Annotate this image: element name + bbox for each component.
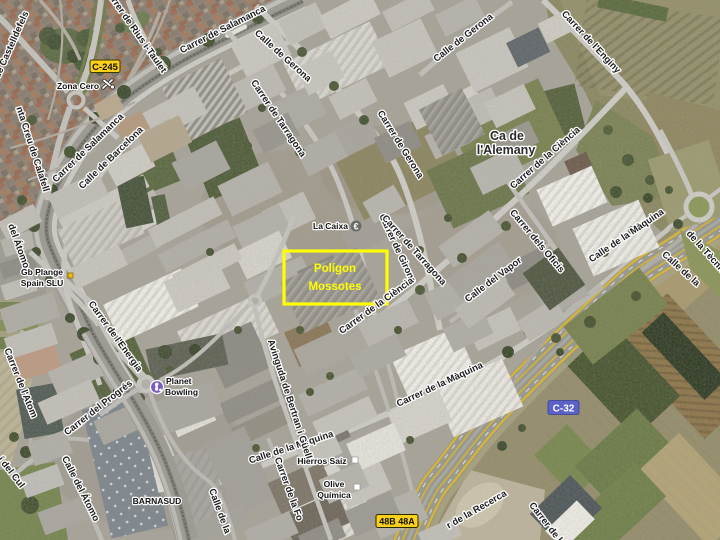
svg-text:€: € [353, 222, 358, 232]
svg-text:Spain SLU: Spain SLU [21, 278, 64, 288]
svg-text:48B 48A: 48B 48A [379, 517, 415, 527]
svg-text:Zona Cero: Zona Cero [57, 81, 99, 91]
svg-text:Ca de: Ca de [490, 129, 524, 143]
svg-text:Mossotes: Mossotes [308, 281, 361, 293]
svg-text:Gb Plange: Gb Plange [21, 267, 63, 277]
svg-text:Polígon: Polígon [314, 263, 356, 275]
svg-text:Hierros Saiz: Hierros Saiz [297, 456, 346, 466]
svg-text:C-32: C-32 [553, 404, 575, 415]
svg-text:Planet: Planet [166, 376, 192, 386]
svg-text:C-245: C-245 [92, 62, 119, 73]
svg-text:Bowling: Bowling [165, 387, 198, 397]
svg-text:Química: Química [317, 490, 351, 500]
svg-text:Olive: Olive [324, 479, 345, 489]
svg-text:BARNASUD: BARNASUD [133, 496, 182, 506]
svg-text:La Caixa: La Caixa [313, 221, 348, 231]
svg-text:l'Alemany: l'Alemany [477, 143, 536, 157]
